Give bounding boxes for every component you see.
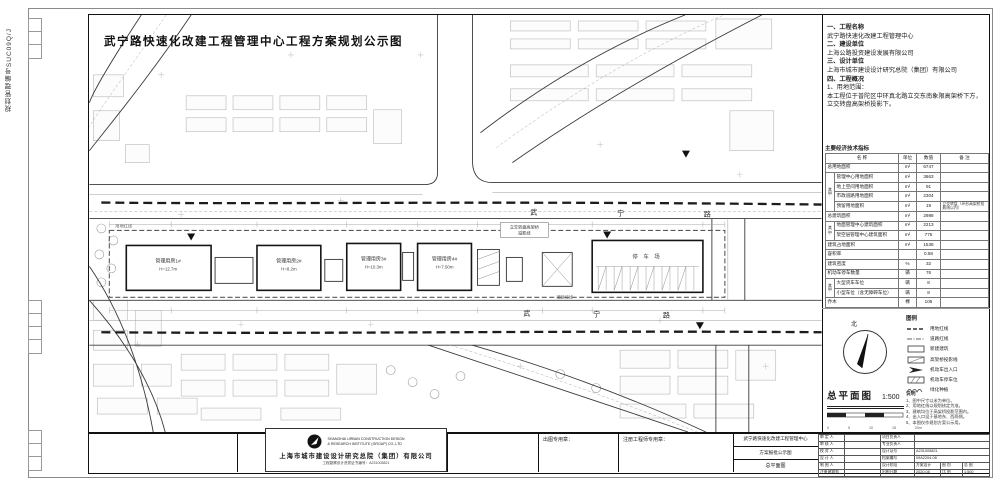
legend-item: 机动车停车位	[906, 375, 988, 385]
drawing-type-cell: 方案报批公示图	[733, 447, 818, 460]
road-char: 武	[530, 208, 537, 217]
building-3-height: H=10.3m	[365, 264, 383, 269]
indicator-value: 19	[917, 201, 941, 211]
road-char: 宁	[593, 309, 600, 318]
indicator-table: 名 称 单位 数值 备 注 总用地面积m²6747其中管理中心用地面积m²366…	[825, 153, 989, 308]
indicator-value: 6747	[917, 163, 941, 173]
info-line: 三、设计单位	[827, 58, 985, 67]
note-line: 5、本图仅作规划方案公示用。	[906, 420, 988, 426]
legend-items: 用地红线道路红线新建建筑高架桥投影线机动车出入口机动车停车位绿化种植	[906, 324, 988, 395]
signature-role-label: 审 定 人	[819, 434, 845, 441]
indicator-unit: 辆	[899, 269, 917, 279]
indicator-note	[941, 269, 989, 279]
indicator-row: 其中管理中心用地面积m²3663	[826, 173, 989, 183]
signature-blank-cell	[845, 448, 881, 455]
signature-row: 设 计 人档案编号09A2204-08	[819, 455, 990, 462]
company-en-line2: & RESEARCH INSTITUTE (GROUP) CO.,LTD	[327, 442, 404, 446]
signature-field-value	[915, 434, 990, 441]
title-block-divider	[618, 433, 619, 472]
indicator-note	[941, 182, 989, 192]
signature-field-value: 2020.08	[915, 469, 941, 476]
legend-item-label: 机动车停车位	[930, 377, 958, 383]
signature-field-value	[915, 441, 990, 448]
indicator-value: 8	[917, 288, 941, 298]
building-1-label: 管理用房1#	[155, 257, 181, 264]
signature-role-label: 审 核 人	[819, 441, 845, 448]
info-line: 1、用地范围：	[827, 84, 985, 93]
indicator-name: 机动车停车数量	[826, 269, 899, 279]
scale-tick: 20m	[915, 426, 922, 430]
col-note: 备 注	[941, 154, 989, 164]
signature-row: 注册建筑师出图日期2020.08比 例1:500	[819, 469, 990, 476]
parking-lot: 停 车 场	[592, 240, 703, 292]
indicator-note: 立交转盘（环形高架桥投影线以内）	[941, 201, 989, 211]
north-arrow	[843, 330, 887, 374]
indicator-table-wrap: 主要经济技术指标 名 称 单位 数值 备 注 总用地面积m²6747其中管理中心…	[825, 144, 988, 308]
indicator-value: 3663	[917, 173, 941, 183]
ramp-projection-label: 立交转盘高架桥	[510, 223, 540, 229]
indicator-value: 76	[917, 269, 941, 279]
scale-bar-ticks: 0 5 10 15 20m	[827, 426, 922, 430]
indicator-note	[941, 173, 989, 183]
indicator-unit: 辆	[899, 288, 917, 298]
legend-item: 高架桥投影线	[906, 355, 988, 365]
indicator-name: 地面管理中心建筑面积	[835, 221, 899, 231]
sheet-title: 武宁路快速化改建工程管理中心工程方案规划公示图	[104, 33, 403, 49]
indicator-unit: 棵	[899, 298, 917, 308]
signature-field-label: 设计阶段	[881, 462, 915, 469]
seal-area-label: 出图专用章：	[543, 436, 573, 443]
info-line: 武宁路快速化改建工程管理中心	[827, 33, 985, 42]
indicator-table-body: 总用地面积m²6747其中管理中心用地面积m²3663地上空间用地面积m²91市…	[826, 163, 989, 307]
legend-item: 道路红线	[906, 334, 988, 344]
indicator-row: 预留用地面积m²19立交转盘（环形高架桥投影线以内）	[826, 201, 989, 211]
indicator-name: 大型货车车位	[835, 279, 899, 289]
indicator-note	[941, 298, 989, 308]
indicator-value: 8	[917, 279, 941, 289]
legend-item: 新建建筑	[906, 344, 988, 354]
indicator-row: 其中地面管理中心建筑面积m²2213	[826, 221, 989, 231]
building-2-height: H=8.2m	[281, 266, 297, 271]
legend-item-label: 新建建筑	[930, 346, 948, 352]
ramp-projection-label2: 投影线	[518, 229, 531, 235]
signature-field-label: 出图日期	[881, 469, 915, 476]
indicator-table-title: 主要经济技术指标	[825, 144, 988, 152]
indicator-name: 市政道路用地面积	[835, 192, 899, 202]
engineer-seal-area-label: 注册工程师专用章：	[623, 436, 668, 443]
signature-field-value: 1:500	[963, 469, 990, 476]
margin-grid-cell	[28, 44, 42, 59]
title-block-divider	[237, 433, 238, 472]
indicator-row: 建筑占地面积m²1538	[826, 240, 989, 250]
signature-role-label: 设 计 人	[819, 455, 845, 462]
indicator-group-label: 其中	[826, 173, 835, 212]
legend: 图例 用地红线道路红线新建建筑高架桥投影线机动车出入口机动车停车位绿化种植	[906, 314, 988, 395]
indicator-value: 2988	[917, 211, 941, 221]
info-line: 二、建设单位	[827, 41, 985, 50]
indicator-name: 建筑密度	[826, 259, 899, 269]
indicator-note	[941, 211, 989, 221]
indicator-value: 32	[917, 259, 941, 269]
signature-table: 审 定 人项目负责人审 核 人专业负责人校 对 人设计证号A231005821设…	[818, 434, 990, 477]
project-info-lines: 一、工程名称武宁路快速化改建工程管理中心二、建设单位上海公路投资建设发展有限公司…	[827, 24, 985, 110]
indicator-unit: m²	[899, 231, 917, 241]
legend-item: 用地红线	[906, 324, 988, 334]
indicator-unit: m²	[899, 182, 917, 192]
drawing-sheet: 规划管理编号SUC09Q/J 武宁路快速化改建工程管理中心工程方案规划公示图	[0, 0, 1001, 500]
indicator-row: 机动车停车数量辆76	[826, 269, 989, 279]
indicator-name: 总建筑面积	[826, 211, 899, 221]
indicator-unit: m²	[899, 163, 917, 173]
signature-field-value: A231005821	[915, 448, 990, 455]
indicator-row: 架空层管理中心建筑面积m²775	[826, 231, 989, 241]
indicator-note	[941, 163, 989, 173]
indicator-name: 地上空间用地面积	[835, 182, 899, 192]
signature-field-label: 比 例	[941, 469, 963, 476]
indicator-name: 建筑占地面积	[826, 240, 899, 250]
indicator-name: 总用地面积	[826, 163, 899, 173]
indicator-name: 乔木	[826, 298, 899, 308]
col-unit: 单位	[899, 154, 917, 164]
rect-legend-icon	[906, 345, 926, 353]
road-char: 武	[523, 308, 530, 317]
signature-field-label: 图 别	[941, 462, 963, 469]
indicator-value: 1538	[917, 240, 941, 250]
signature-field-label: 项目负责人	[881, 434, 915, 441]
indicator-note	[941, 192, 989, 202]
dash-bold-legend-icon	[906, 325, 926, 333]
design-company-block: SHANGHAI URBAN CONSTRUCTION DESIGN & RES…	[265, 428, 447, 472]
indicator-unit	[899, 250, 917, 260]
indicator-name: 小型车位（含无障碍车位）	[835, 288, 899, 298]
legend-title: 图例	[906, 314, 988, 322]
margin-grid-cell	[28, 339, 42, 354]
signature-table-wrap: 审 定 人项目负责人审 核 人专业负责人校 对 人设计证号A231005821设…	[818, 434, 989, 477]
plan-title: 总平面图1:500	[827, 386, 904, 409]
indicator-row: 总用地面积m²6747	[826, 163, 989, 173]
indicator-value: 2213	[917, 221, 941, 231]
indicator-row: 总建筑面积m²2988	[826, 211, 989, 221]
indicator-value: 91	[917, 182, 941, 192]
building-4-height: H=7.50m	[436, 264, 454, 269]
indicator-note	[941, 221, 989, 231]
signature-field-label: 专业负责人	[881, 441, 915, 448]
indicator-row: 小型车位（含无障碍车位）辆8	[826, 288, 989, 298]
signature-role-label: 制 图 人	[819, 462, 845, 469]
management-buildings: 管理用房1# H=12.7m 管理用房2# H=8.2m 管理用房3# H=10…	[126, 243, 572, 290]
north-label: 北	[851, 319, 857, 328]
indicator-unit: m²	[899, 240, 917, 250]
project-name-cell: 武宁路快速化改建工程管理中心	[733, 434, 818, 447]
indicator-name: 管理中心用地面积	[835, 173, 899, 183]
plan-title-scale: 1:500	[882, 394, 900, 401]
plan-management-code: 规划管理编号SUC09Q/J	[5, 28, 15, 112]
signature-field-value: 总 图	[963, 462, 990, 469]
company-name-cn: 上海市城市建设设计研究总院（集团）有限公司	[279, 451, 432, 460]
signature-row: 制 图 人设计阶段方案设计图 别总 图	[819, 462, 990, 469]
hatch-rect-legend-icon	[906, 376, 926, 384]
signature-blank-cell	[845, 434, 881, 441]
indicator-unit: 辆	[899, 279, 917, 289]
signature-field-value: 方案设计	[915, 462, 941, 469]
indicator-group-label: 其中	[826, 279, 835, 298]
right-panel-divider	[822, 14, 823, 432]
company-en-line1: SHANGHAI URBAN CONSTRUCTION DESIGN	[327, 437, 404, 441]
info-line: 四、工程概况	[827, 76, 985, 85]
scale-tick: 15	[892, 426, 896, 430]
indicator-value: 105	[917, 298, 941, 308]
info-line: 本工程位于普陀区中环真北路立交东南象限高架桥下方，立交转盘高架桥投影下。	[827, 93, 985, 110]
signature-row: 校 对 人设计证号A231005821	[819, 448, 990, 455]
legend-item-label: 道路红线	[930, 336, 948, 342]
signature-role-label: 注册建筑师	[819, 469, 845, 476]
road-char: 路	[704, 210, 711, 219]
right-panel-hline	[822, 308, 990, 309]
indicator-note	[941, 250, 989, 260]
indicator-header-row: 名 称 单位 数值 备 注	[826, 154, 989, 164]
building-3-label: 管理用房3#	[361, 255, 387, 262]
site-red-line-label: 用地红线	[115, 222, 132, 228]
dashdot-legend-icon	[906, 335, 926, 343]
indicator-row: 地上空间用地面积m²91	[826, 182, 989, 192]
indicator-unit: m²	[899, 173, 917, 183]
legend-item-label: 机动车出入口	[930, 367, 958, 373]
company-name-en: SHANGHAI URBAN CONSTRUCTION DESIGN & RES…	[327, 437, 404, 446]
indicator-note	[941, 240, 989, 250]
indicator-row: 其中大型货车车位辆8	[826, 279, 989, 289]
indicator-value: 0.58	[917, 250, 941, 260]
signature-blank-cell	[845, 455, 881, 462]
company-logo-icon	[307, 434, 322, 449]
drawing-name-cell: 总平面图	[733, 460, 818, 472]
indicator-unit: m²	[899, 201, 917, 211]
indicator-row: 建筑密度%32	[826, 259, 989, 269]
indicator-name: 架空层管理中心建筑面积	[835, 231, 899, 241]
notes-items: 1、图中尺寸以米为单位。2、用地红线以规划核定为准。3、建筑均位于高架桥投影范围…	[906, 398, 988, 426]
rect-diag-legend-icon	[906, 356, 926, 364]
legend-item-label: 高架桥投影线	[930, 357, 958, 363]
margin-grid-cell	[28, 456, 42, 471]
indicator-note	[941, 231, 989, 241]
title-block-divider	[538, 433, 539, 472]
indicator-value: 2304	[917, 192, 941, 202]
indicator-unit: m²	[899, 221, 917, 231]
road-char: 路	[663, 310, 670, 319]
road-char: 宁	[617, 209, 624, 218]
indicator-row: 市政道路用地面积m²2304	[826, 192, 989, 202]
signature-blank-cell	[845, 441, 881, 448]
legend-item-label: 用地红线	[930, 326, 948, 332]
info-line: 上海市城市建设设计研究总院（集团）有限公司	[827, 67, 985, 76]
indicator-name: 容积率	[826, 250, 899, 260]
col-value: 数值	[917, 154, 941, 164]
indicator-name: 预留用地面积	[835, 201, 899, 211]
signature-row: 审 定 人项目负责人	[819, 434, 990, 441]
col-name: 名 称	[826, 154, 899, 164]
notes: 说明 1、图中尺寸以米为单位。2、用地红线以规划核定为准。3、建筑均位于高架桥投…	[906, 392, 988, 425]
info-line: 一、工程名称	[827, 24, 985, 33]
scale-tick: 0	[827, 426, 829, 430]
signature-blank-cell	[845, 462, 881, 469]
indicator-unit: m²	[899, 211, 917, 221]
signature-field-label: 设计证号	[881, 448, 915, 455]
title-block-divider	[447, 433, 448, 472]
scale-tick: 5	[848, 426, 850, 430]
building-2-label: 管理用房2#	[276, 257, 302, 264]
indicator-row: 容积率0.58	[826, 250, 989, 260]
signature-table-body: 审 定 人项目负责人审 核 人专业负责人校 对 人设计证号A231005821设…	[819, 434, 990, 476]
company-cert: 工程勘察设计资质证书编号：A231005821	[322, 461, 389, 466]
plan-title-label: 总平面图	[827, 391, 873, 402]
project-name-cells: 武宁路快速化改建工程管理中心 方案报批公示图 总平面图	[733, 434, 818, 473]
signature-blank-cell	[845, 469, 881, 476]
indicator-group-label: 其中	[826, 221, 835, 240]
indicator-unit: %	[899, 259, 917, 269]
arrow-legend-icon	[906, 366, 926, 374]
indicator-note	[941, 279, 989, 289]
parking-label: 停 车 场	[632, 252, 661, 260]
indicator-row: 乔木棵105	[826, 298, 989, 308]
signature-role-label: 校 对 人	[819, 448, 845, 455]
background-buildings	[93, 19, 775, 420]
building-1-height: H=12.7m	[159, 266, 177, 271]
scale-tick: 10	[869, 426, 873, 430]
indicator-value: 775	[917, 231, 941, 241]
legend-item: 机动车出入口	[906, 365, 988, 375]
site-plan-drawing: 管理用房1# H=12.7m 管理用房2# H=8.2m 管理用房3# H=10…	[89, 15, 822, 432]
indicator-note	[941, 259, 989, 269]
signature-field-label: 档案编号	[881, 455, 915, 462]
signature-row: 审 核 人专业负责人	[819, 441, 990, 448]
indicator-note	[941, 288, 989, 298]
signature-field-value: 09A2204-08	[915, 455, 990, 462]
north-needle	[844, 331, 884, 371]
indicator-unit: m²	[899, 192, 917, 202]
building-4-label: 管理用房4#	[432, 255, 458, 262]
road-red-line-label: 道路红线	[556, 293, 573, 299]
